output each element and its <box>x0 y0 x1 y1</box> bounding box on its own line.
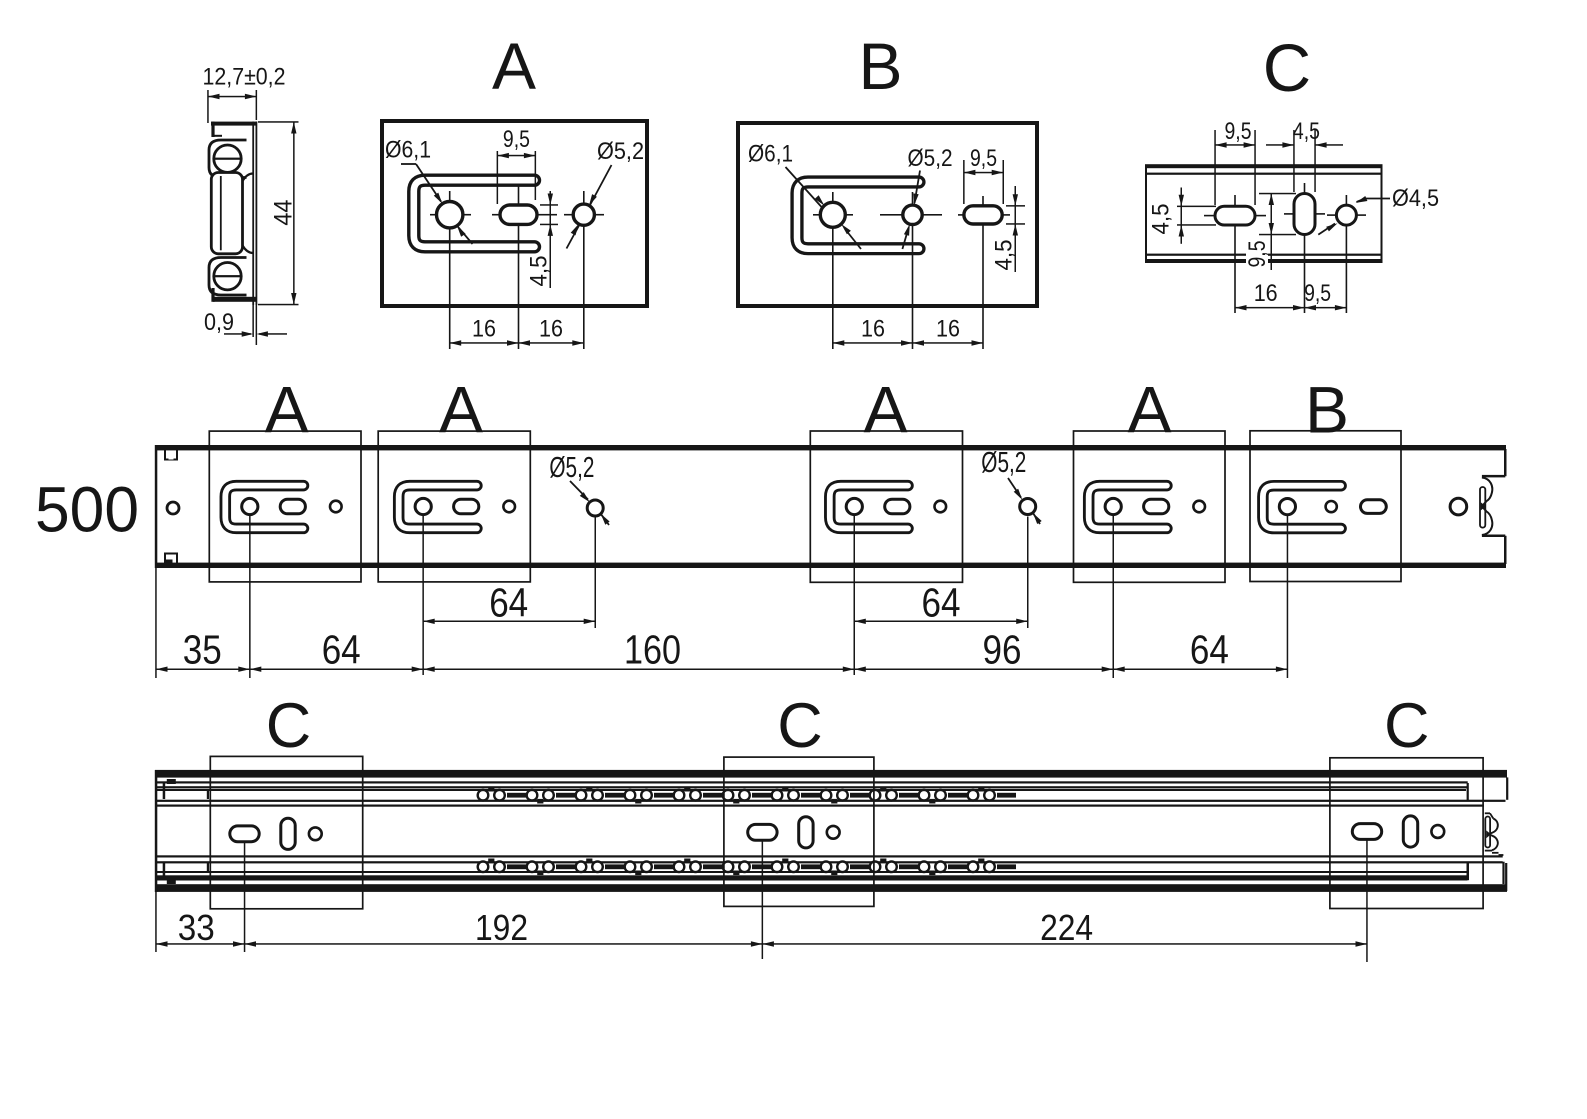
svg-text:64: 64 <box>922 580 961 626</box>
svg-text:224: 224 <box>1040 907 1093 948</box>
svg-text:4,5: 4,5 <box>1293 118 1320 145</box>
svg-text:B: B <box>1305 373 1349 447</box>
svg-text:9,5: 9,5 <box>1244 241 1271 268</box>
svg-text:4,5: 4,5 <box>1148 204 1175 235</box>
svg-text:C: C <box>777 691 823 761</box>
svg-text:16: 16 <box>1254 280 1278 307</box>
svg-text:16: 16 <box>936 316 960 343</box>
svg-text:64: 64 <box>489 580 528 626</box>
svg-text:C: C <box>266 691 312 761</box>
svg-text:96: 96 <box>983 627 1022 673</box>
svg-text:B: B <box>858 29 902 103</box>
svg-text:16: 16 <box>861 316 885 343</box>
svg-text:192: 192 <box>475 907 528 948</box>
svg-text:A: A <box>1127 373 1171 447</box>
svg-text:35: 35 <box>183 627 222 673</box>
svg-text:Ø6,1: Ø6,1 <box>748 140 793 167</box>
svg-text:9,5: 9,5 <box>503 126 530 153</box>
svg-text:Ø4,5: Ø4,5 <box>1392 185 1439 212</box>
svg-text:A: A <box>265 373 309 447</box>
svg-text:44: 44 <box>270 200 298 226</box>
svg-text:Ø5,2: Ø5,2 <box>908 145 953 172</box>
svg-text:160: 160 <box>624 627 681 673</box>
svg-text:4,5: 4,5 <box>526 256 553 287</box>
svg-text:9,5: 9,5 <box>1225 118 1252 145</box>
svg-text:64: 64 <box>322 627 361 673</box>
svg-text:16: 16 <box>472 316 496 343</box>
svg-text:64: 64 <box>1190 627 1229 673</box>
svg-text:9,5: 9,5 <box>970 145 997 172</box>
svg-text:Ø5,2: Ø5,2 <box>597 138 644 165</box>
svg-text:33: 33 <box>178 907 215 948</box>
svg-text:Ø5,2: Ø5,2 <box>981 447 1026 479</box>
svg-text:4,5: 4,5 <box>991 240 1018 271</box>
svg-text:A: A <box>492 29 536 103</box>
svg-text:0,9: 0,9 <box>204 309 234 336</box>
svg-text:12,7±0,2: 12,7±0,2 <box>203 64 286 91</box>
svg-text:A: A <box>863 373 907 447</box>
svg-text:A: A <box>439 373 483 447</box>
svg-text:C: C <box>1384 691 1430 761</box>
svg-text:Ø5,2: Ø5,2 <box>549 452 594 484</box>
svg-text:C: C <box>1263 31 1311 106</box>
svg-text:16: 16 <box>539 316 563 343</box>
svg-text:Ø6,1: Ø6,1 <box>385 137 431 164</box>
svg-text:9,5: 9,5 <box>1304 280 1331 307</box>
svg-text:500: 500 <box>35 474 139 546</box>
